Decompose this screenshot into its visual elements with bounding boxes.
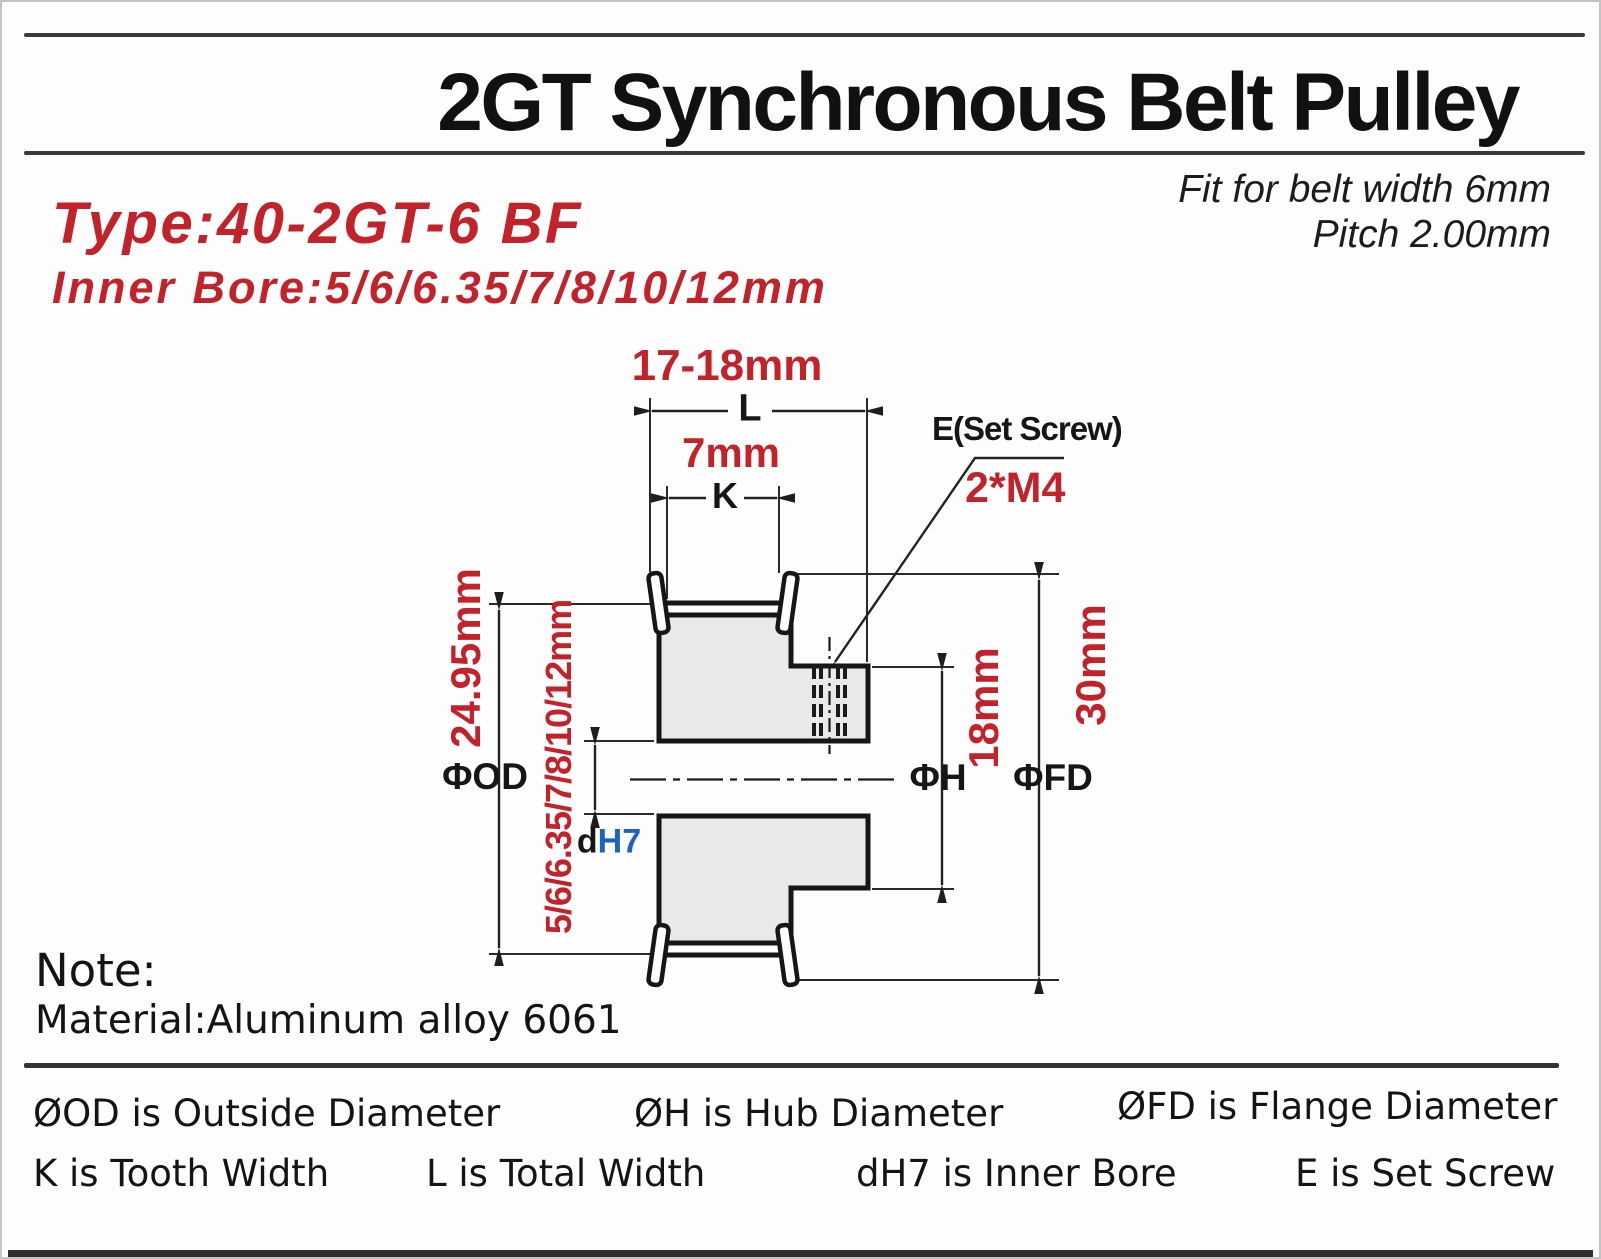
outside-diameter-value: 24.95mm — [442, 568, 490, 748]
pulley-cross-section-drawing — [2, 2, 1601, 1259]
legend-inner-bore: dH7 is Inner Bore — [856, 1152, 1177, 1195]
inner-bore-symbol-h7: H7 — [598, 823, 641, 861]
set-screw-label: E(Set Screw) — [932, 410, 1122, 448]
flange-flare-top-left — [648, 572, 669, 633]
total-width-dimension-symbol: L — [738, 388, 761, 431]
tooth-width-dimension-value: 7mm — [682, 429, 780, 477]
spec-sheet-page: 2GT Synchronous Belt Pulley Fit for belt… — [0, 0, 1601, 1259]
flange-diameter-symbol: ΦFD — [1013, 757, 1093, 799]
outside-diameter-symbol: ΦOD — [442, 756, 528, 798]
inner-bore-symbol-d: d — [577, 823, 598, 861]
inner-bore-value: 5/6/6.35/7/8/10/12mm — [538, 600, 580, 934]
total-width-dimension-value: 17-18mm — [632, 341, 823, 391]
note-heading: Note: — [35, 944, 157, 997]
hub-diameter-symbol: ΦH — [909, 757, 966, 799]
flange-diameter-value: 30mm — [1067, 604, 1115, 725]
flange-flare-bottom-left — [648, 924, 669, 985]
legend-total-width: L is Total Width — [426, 1152, 705, 1195]
pulley-lower-half-section — [659, 816, 868, 943]
legend-od: ØOD is Outside Diameter — [33, 1092, 500, 1135]
legend-set-screw: E is Set Screw — [1295, 1152, 1555, 1195]
hub-diameter-value: 18mm — [960, 647, 1008, 768]
legend-divider-rule — [24, 1063, 1559, 1068]
tooth-width-dimension-symbol: K — [712, 475, 738, 517]
legend-hub: ØH is Hub Diameter — [634, 1092, 1003, 1135]
legend-flange: ØFD is Flange Diameter — [1117, 1085, 1557, 1128]
set-screw-spec: 2*M4 — [965, 464, 1065, 513]
legend-tooth-width: K is Tooth Width — [33, 1152, 329, 1195]
inner-bore-symbol: dH7 — [577, 823, 641, 862]
note-material: Material:Aluminum alloy 6061 — [35, 998, 622, 1043]
flange-flare-bottom-right — [777, 924, 798, 985]
flange-flare-top-right — [777, 572, 798, 633]
bottom-edge-bar — [8, 1250, 1593, 1257]
